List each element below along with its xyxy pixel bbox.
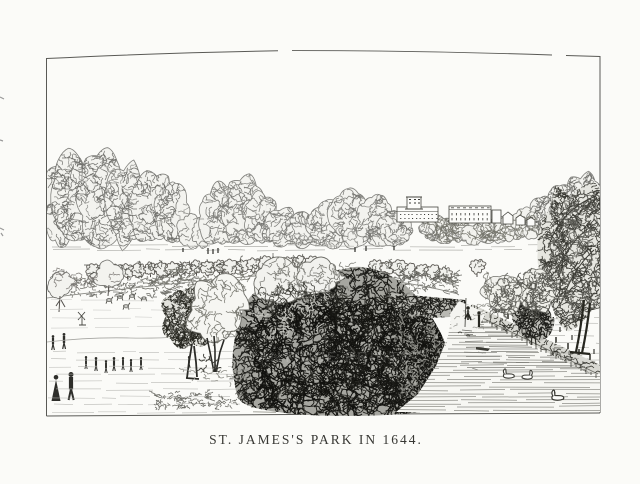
svg-text:ANTIQUE PRINTS: ANTIQUE PRINTS	[258, 349, 412, 366]
svg-text:ST. JAMES'S PARK IN 1644.: ST. JAMES'S PARK IN 1644.	[209, 432, 423, 447]
